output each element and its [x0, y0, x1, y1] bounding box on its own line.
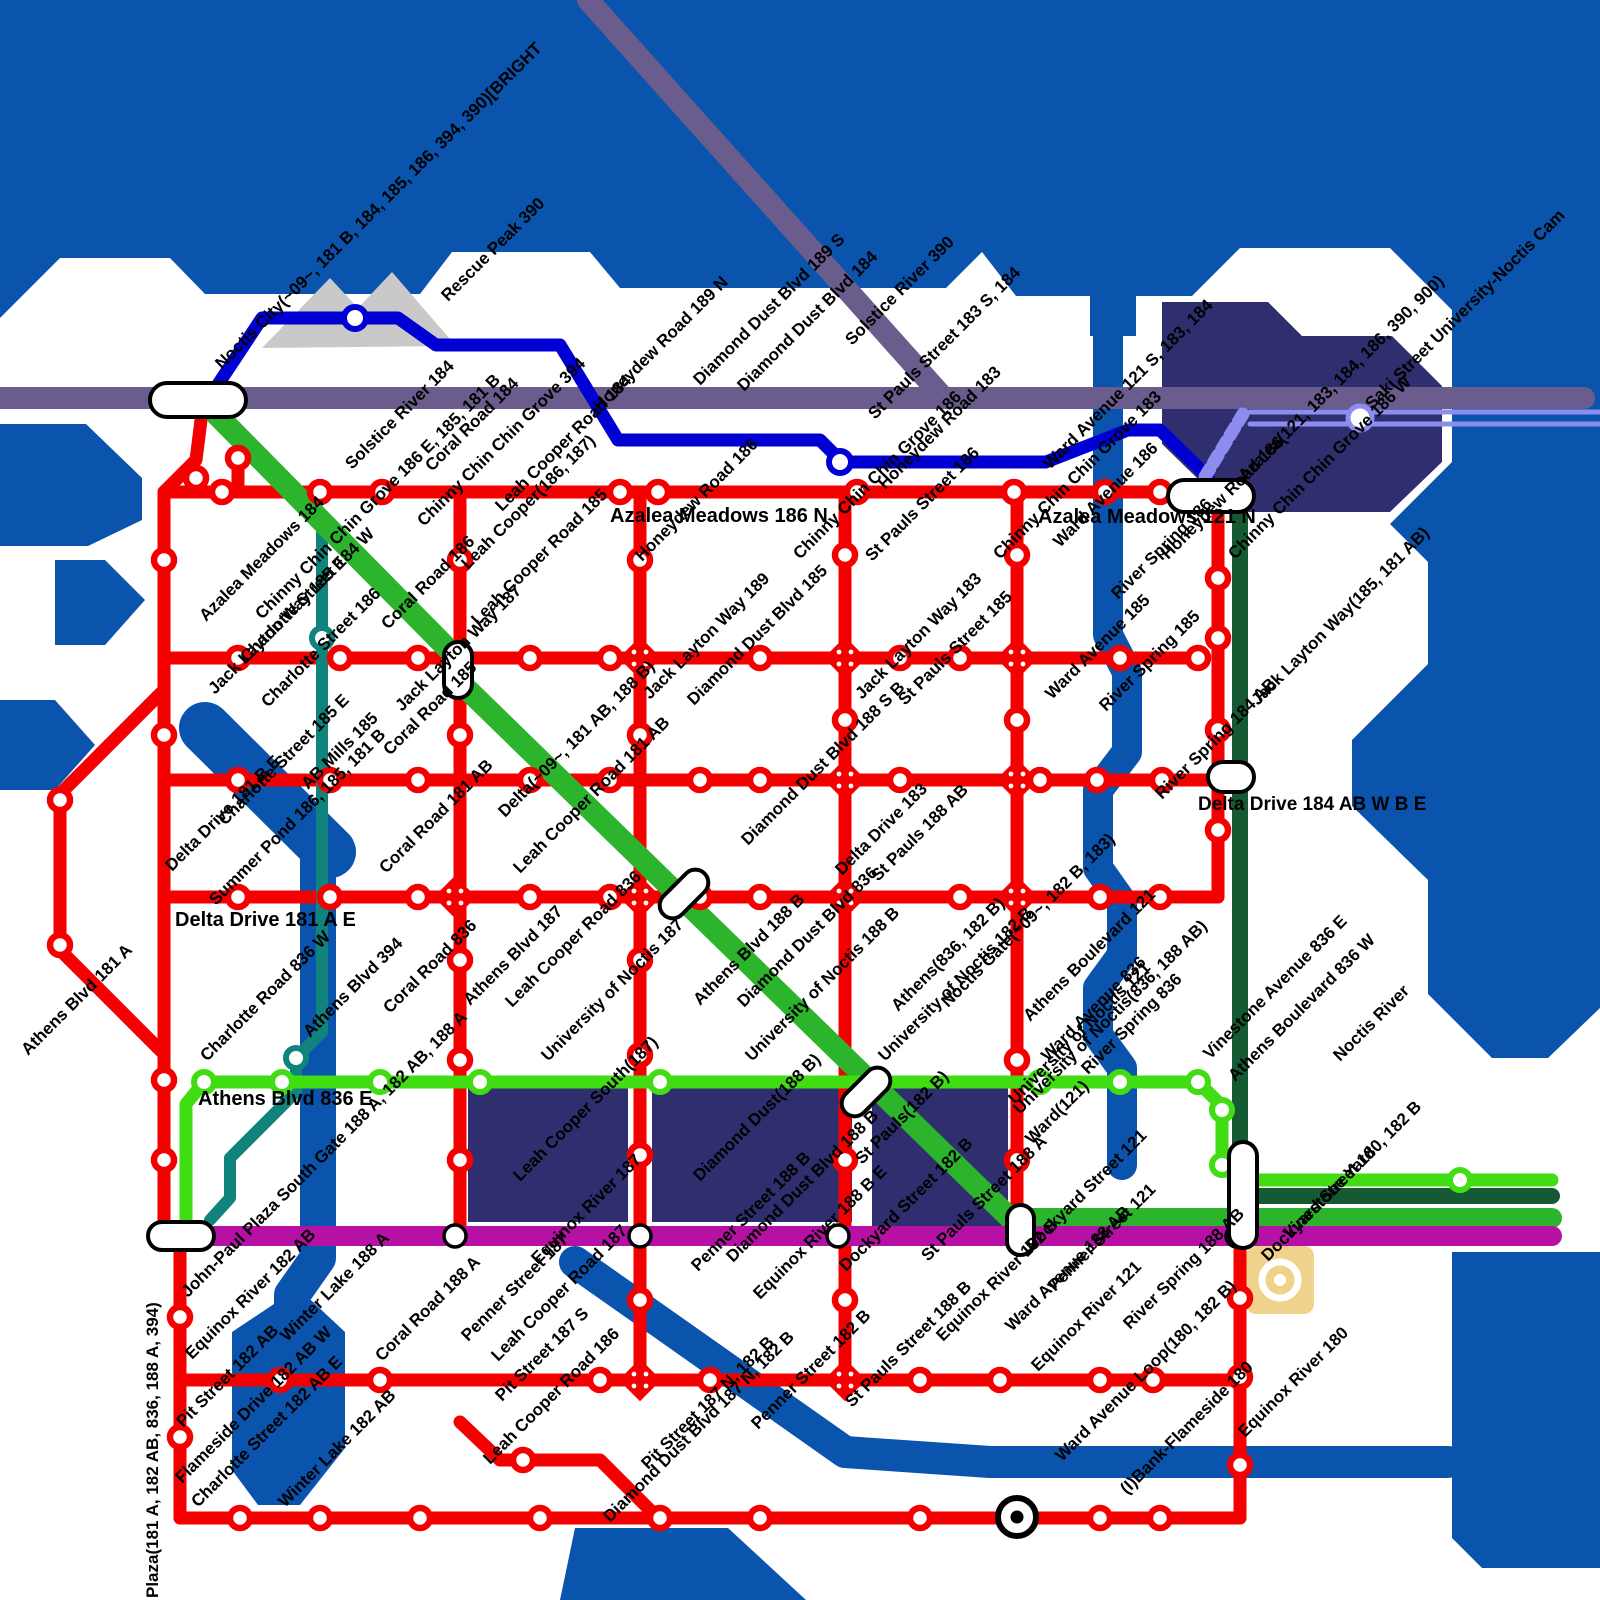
stop[interactable] [1212, 1100, 1232, 1120]
stop[interactable] [513, 1450, 533, 1470]
stop[interactable] [629, 1225, 651, 1247]
stop[interactable] [835, 545, 855, 565]
stop[interactable] [1208, 820, 1228, 840]
station-label: Azalea Meadows 121 N [1038, 506, 1256, 528]
stop[interactable] [1007, 710, 1027, 730]
junction-dot [849, 650, 854, 655]
stop[interactable] [1087, 770, 1107, 790]
stop[interactable] [750, 770, 770, 790]
interchange-station-pill[interactable] [150, 383, 246, 417]
stop[interactable] [1208, 628, 1228, 648]
stop[interactable] [410, 1508, 430, 1528]
junction-dot [849, 662, 854, 667]
terminus-target-dot [1011, 1511, 1024, 1524]
stop[interactable] [1230, 1455, 1250, 1475]
stop[interactable] [950, 887, 970, 907]
interchange-station-pill[interactable] [1208, 762, 1254, 792]
junction-dot [644, 1372, 649, 1377]
stop[interactable] [829, 451, 851, 473]
stop[interactable] [1030, 770, 1050, 790]
stop[interactable] [154, 550, 174, 570]
interchange-station-pill[interactable] [148, 1222, 214, 1250]
junction-dot [1009, 889, 1014, 894]
station-label: Plaza(181 A, 182 AB, 836, 188 A, 394) [143, 1302, 162, 1598]
junction-dot [1021, 662, 1026, 667]
stop[interactable] [750, 887, 770, 907]
junction-dot [849, 1372, 854, 1377]
stop[interactable] [750, 1508, 770, 1528]
stop[interactable] [530, 1508, 550, 1528]
junction-dot [1009, 650, 1014, 655]
stop[interactable] [228, 448, 248, 468]
junction-dot [1021, 784, 1026, 789]
stop[interactable] [170, 1307, 190, 1327]
stop[interactable] [910, 1370, 930, 1390]
transit-map: Noctis City(~09~, 181 B, 184, 185, 186, … [0, 0, 1600, 1600]
stop[interactable] [990, 1370, 1010, 1390]
station-label: Azalea Meadows 186 N [610, 505, 828, 527]
junction-dot [837, 1384, 842, 1389]
junction-dot [447, 889, 452, 894]
junction-dot [1009, 662, 1014, 667]
junction-dot [632, 650, 637, 655]
junction-dot [1009, 784, 1014, 789]
stop[interactable] [408, 770, 428, 790]
stop[interactable] [610, 482, 630, 502]
stop[interactable] [50, 935, 70, 955]
stop[interactable] [600, 648, 620, 668]
junction-dot [1009, 772, 1014, 777]
stop[interactable] [1188, 1072, 1208, 1092]
junction-dot [632, 901, 637, 906]
stop[interactable] [1090, 1370, 1110, 1390]
stop[interactable] [344, 307, 366, 329]
junction-dot [644, 889, 649, 894]
stop[interactable] [630, 1290, 650, 1310]
junction-dot [1021, 889, 1026, 894]
station-label: Delta Drive 184 AB W B E [1198, 794, 1426, 815]
stop[interactable] [1007, 1050, 1027, 1070]
stop[interactable] [450, 725, 470, 745]
stop[interactable] [1188, 648, 1208, 668]
stop[interactable] [154, 725, 174, 745]
stop[interactable] [470, 1072, 490, 1092]
stop[interactable] [1110, 648, 1130, 668]
junction-dot [632, 1384, 637, 1389]
stop[interactable] [50, 790, 70, 810]
stop[interactable] [1090, 1508, 1110, 1528]
stop[interactable] [890, 770, 910, 790]
junction-dot [1021, 650, 1026, 655]
station-label: Delta Drive 181 A E [175, 909, 356, 931]
station-label: Athens Blvd 836 E [198, 1088, 373, 1110]
stop[interactable] [408, 887, 428, 907]
stop[interactable] [154, 1150, 174, 1170]
stop[interactable] [1150, 1508, 1170, 1528]
stop[interactable] [690, 770, 710, 790]
stop[interactable] [330, 648, 350, 668]
junction-dot [1009, 901, 1014, 906]
stop[interactable] [450, 1150, 470, 1170]
transit-map-canvas[interactable]: Noctis City(~09~, 181 B, 184, 185, 186, … [0, 0, 1600, 1600]
stop[interactable] [310, 1508, 330, 1528]
stop[interactable] [450, 1050, 470, 1070]
stop[interactable] [520, 648, 540, 668]
stop[interactable] [408, 648, 428, 668]
junction-dot [644, 901, 649, 906]
stop[interactable] [1090, 887, 1110, 907]
stop[interactable] [910, 1508, 930, 1528]
stop[interactable] [444, 1225, 466, 1247]
junction-dot [837, 784, 842, 789]
junction-dot [644, 650, 649, 655]
junction-dot [459, 901, 464, 906]
stop[interactable] [590, 1370, 610, 1390]
junction-dot [849, 784, 854, 789]
stop[interactable] [1450, 1170, 1470, 1190]
junction-dot [837, 662, 842, 667]
stop[interactable] [170, 1427, 190, 1447]
junction-dot [644, 1384, 649, 1389]
stop[interactable] [1208, 568, 1228, 588]
stop[interactable] [835, 1290, 855, 1310]
stop[interactable] [648, 482, 668, 502]
stop[interactable] [286, 1048, 306, 1068]
stop[interactable] [1110, 1072, 1130, 1092]
stop[interactable] [320, 887, 340, 907]
junction-dot [849, 772, 854, 777]
stop[interactable] [186, 468, 206, 488]
junction-dot [447, 901, 452, 906]
junction-dot [837, 1372, 842, 1377]
water-body [1452, 1252, 1600, 1568]
stop[interactable] [230, 1508, 250, 1528]
junction-dot [459, 889, 464, 894]
stop[interactable] [154, 1070, 174, 1090]
junction-dot [837, 650, 842, 655]
terminus-target-white-dot [1274, 1274, 1286, 1286]
junction-dot [1021, 772, 1026, 777]
junction-dot [632, 1372, 637, 1377]
junction-dot [837, 772, 842, 777]
stop[interactable] [650, 1072, 670, 1092]
stop[interactable] [650, 1508, 670, 1528]
stop[interactable] [1004, 482, 1024, 502]
stop[interactable] [520, 887, 540, 907]
stop[interactable] [212, 482, 232, 502]
